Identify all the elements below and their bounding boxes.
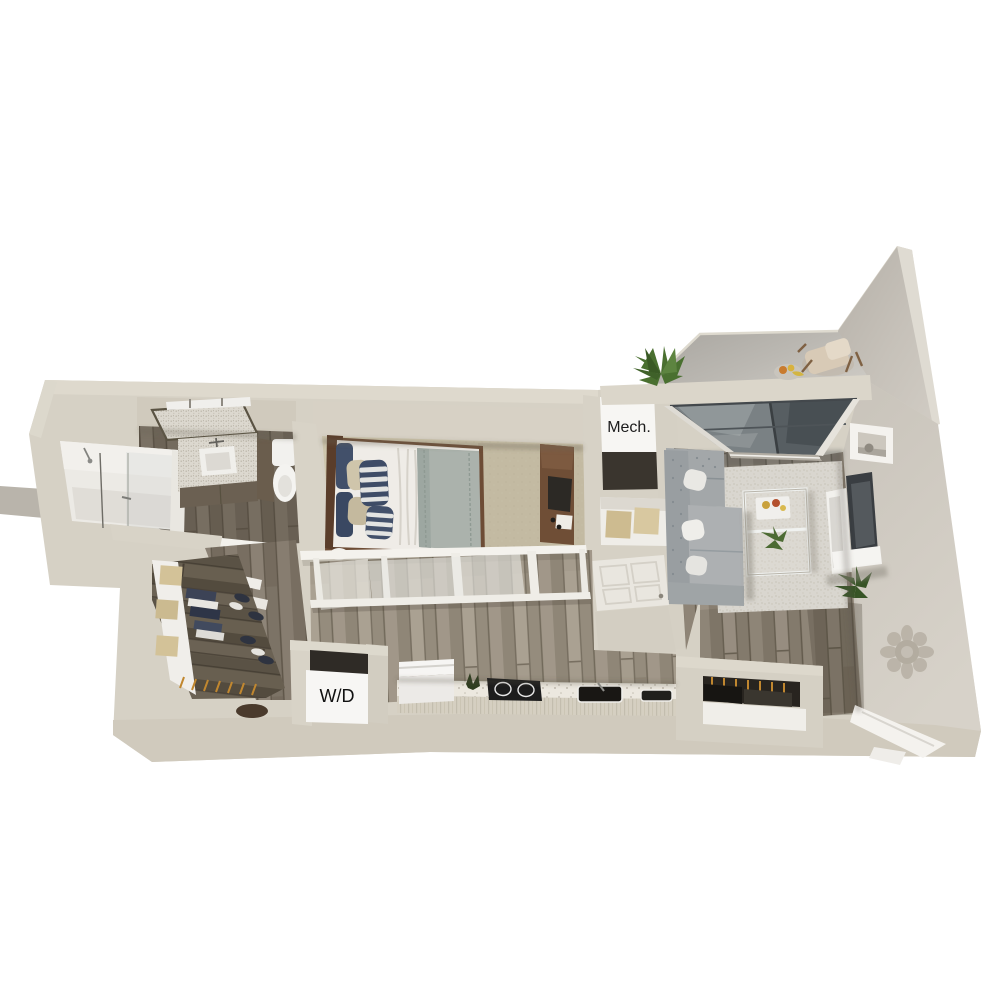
svg-text:Mech.: Mech. [607,419,651,436]
svg-text:W/D: W/D [320,686,355,706]
